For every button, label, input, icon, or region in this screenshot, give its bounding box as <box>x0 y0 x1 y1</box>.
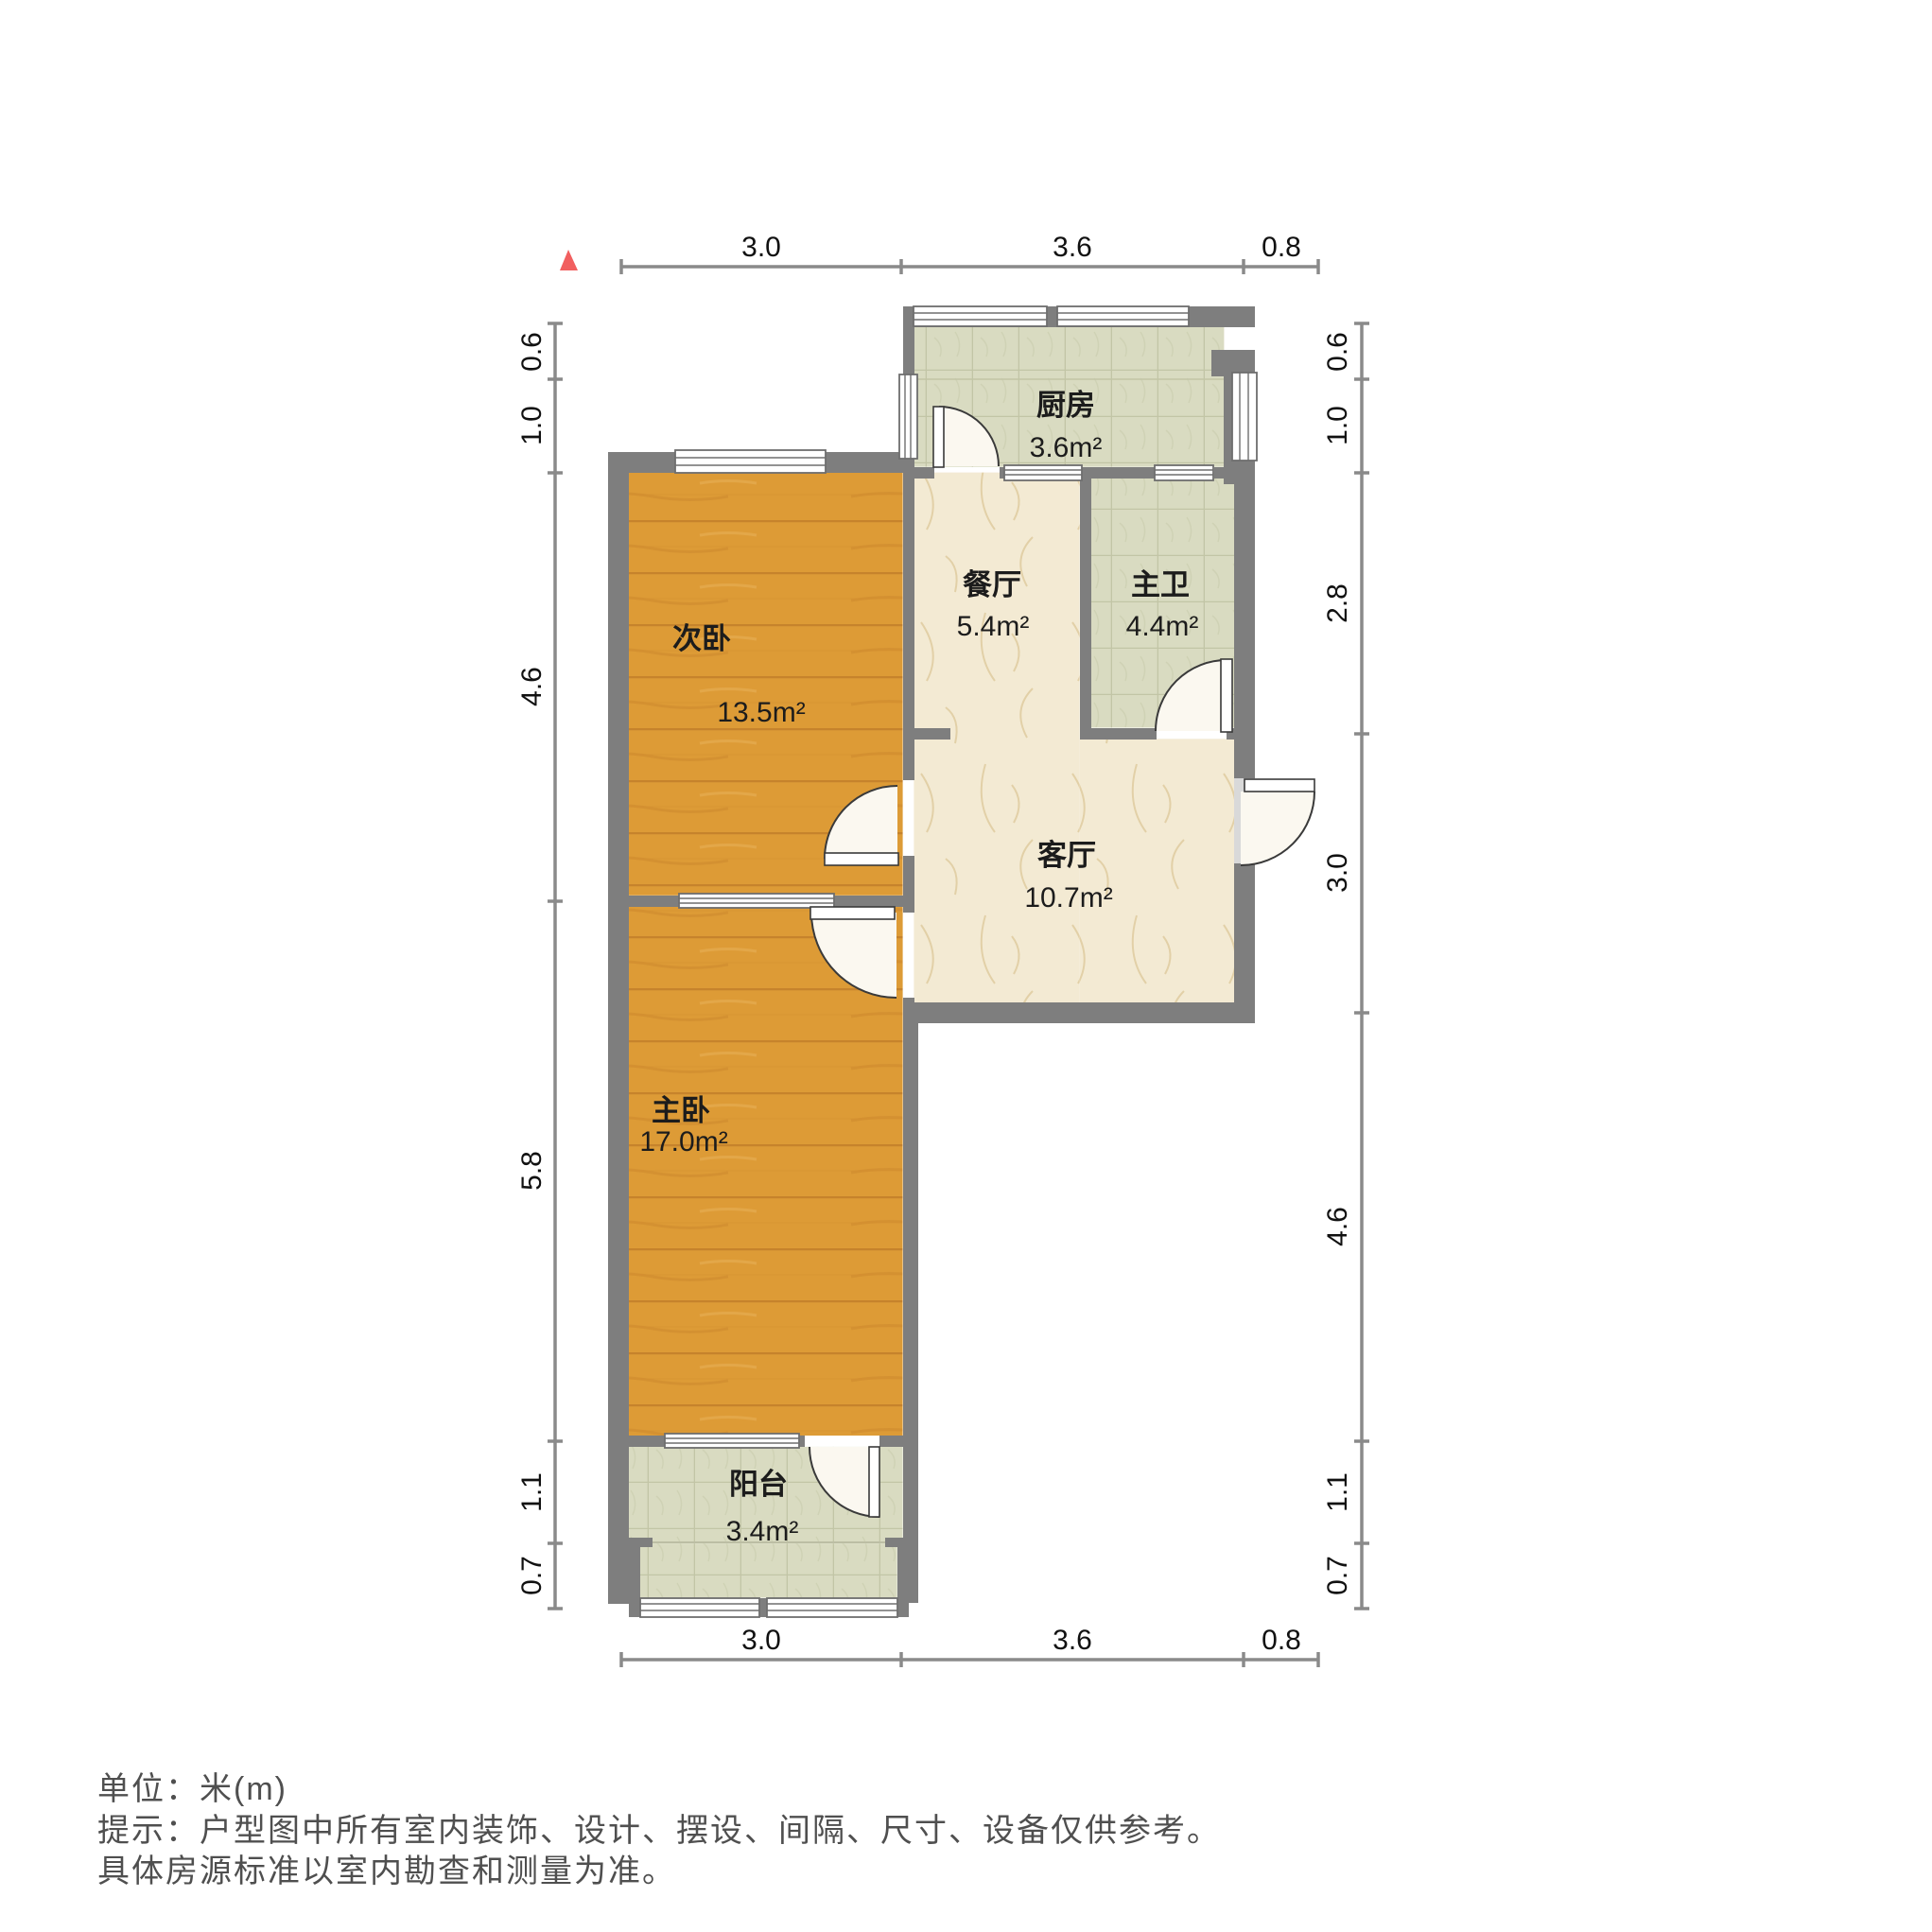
entry-door <box>1241 779 1314 865</box>
balcony-bay-window-right <box>767 1598 897 1617</box>
master-bath-label: 主卫 <box>1131 568 1190 601</box>
dim-bottom-3: 0.8 <box>1262 1625 1301 1656</box>
wall-segment <box>629 1543 640 1603</box>
master-bath-area: 4.4m² <box>1126 611 1199 642</box>
north-triangle-icon <box>560 250 578 270</box>
dim-top-2: 3.6 <box>1053 232 1092 263</box>
kitchen-dining-passthrough-window <box>1004 465 1082 480</box>
wall-segment <box>1080 728 1157 740</box>
dining-label: 餐厅 <box>963 568 1021 601</box>
dim-left-3: 4.6 <box>516 667 548 706</box>
dim-right-1: 0.6 <box>1322 332 1353 372</box>
master-bedroom-area: 17.0m² <box>639 1126 727 1157</box>
wall-segment <box>629 1598 640 1617</box>
dim-top-1: 3.0 <box>741 232 781 263</box>
wall-segment <box>629 896 679 907</box>
living-label: 客厅 <box>1037 839 1096 872</box>
master-bedroom-balcony-window <box>665 1434 799 1448</box>
wall-segment <box>759 1598 767 1617</box>
kitchen-bay-window-left <box>914 306 1047 326</box>
dim-left-5: 1.1 <box>516 1472 548 1512</box>
wall-segment <box>629 1436 665 1447</box>
floors <box>629 327 1234 1598</box>
dim-top-3: 0.8 <box>1262 232 1301 263</box>
wall-segment <box>834 896 914 907</box>
living-area: 10.7m² <box>1024 882 1112 914</box>
kitchen-bath-passthrough-window <box>1155 465 1213 480</box>
dim-right-7: 0.7 <box>1322 1556 1353 1595</box>
kitchen-area: 3.6m² <box>1030 432 1103 463</box>
wall-segment <box>897 1598 909 1617</box>
balcony-label: 阳台 <box>729 1468 788 1501</box>
second-bedroom-area: 13.5m² <box>717 697 805 728</box>
wall-segment <box>608 452 629 1604</box>
wall-segment <box>903 1023 918 1603</box>
wall-segment <box>914 728 950 740</box>
dimension-left: 0.6 1.0 4.6 5.8 1.1 0.7 <box>516 323 563 1609</box>
dim-left-1: 0.6 <box>516 332 548 372</box>
tip-note-line1: 提示：户型图中所有室内装饰、设计、摆设、间隔、尺寸、设备仅供参考。 <box>97 1813 1221 1849</box>
kitchen-left-window <box>899 374 917 459</box>
dim-right-6: 1.1 <box>1322 1472 1353 1512</box>
wall-segment <box>903 473 914 780</box>
wall-segment <box>1234 863 1255 1023</box>
dim-right-5: 4.6 <box>1322 1207 1353 1246</box>
bedroom-divider-window <box>679 894 834 908</box>
dimension-bottom: 3.0 3.6 0.8 <box>621 1625 1318 1667</box>
dim-bottom-2: 3.6 <box>1053 1625 1092 1656</box>
dining-area: 5.4m² <box>957 611 1030 642</box>
wall-segment <box>1234 459 1255 778</box>
wall-segment <box>1080 473 1091 739</box>
wall-segment <box>799 1436 805 1447</box>
second-bedroom-label: 次卧 <box>672 622 731 655</box>
wall-segment <box>897 1543 909 1603</box>
second-bedroom-top-window <box>675 450 826 473</box>
footer-notes: 单位：米(m) 提示：户型图中所有室内装饰、设计、摆设、间隔、尺寸、设备仅供参考… <box>97 1771 1221 1889</box>
dim-bottom-1: 3.0 <box>741 1625 781 1656</box>
living-floor <box>1080 739 1235 1002</box>
dim-right-4: 3.0 <box>1322 853 1353 893</box>
dim-right-2: 1.0 <box>1322 406 1353 445</box>
balcony-bay-floor <box>640 1543 897 1597</box>
dim-left-2: 1.0 <box>516 406 548 445</box>
dimension-top: 3.0 3.6 0.8 <box>621 232 1318 274</box>
dim-left-4: 5.8 <box>516 1151 548 1191</box>
wall-segment <box>1214 467 1234 479</box>
kitchen-bay-window-right <box>1057 306 1189 326</box>
wall-segment <box>914 467 934 479</box>
wall-segment <box>1081 467 1157 479</box>
floorplan-canvas: 厨房 3.6m² 餐厅 5.4m² 主卫 4.4m² 次卧 13.5m² 客厅 … <box>0 0 1932 1932</box>
kitchen-label: 厨房 <box>1036 389 1095 422</box>
dim-left-6: 0.7 <box>516 1556 548 1595</box>
balcony-area: 3.4m² <box>726 1516 799 1547</box>
wall-segment <box>903 1002 1255 1023</box>
balcony-bay-window-left <box>640 1598 759 1617</box>
unit-note: 单位：米(m) <box>97 1771 287 1807</box>
tip-note-line2: 具体房源标准以室内勘查和测量为准。 <box>97 1854 676 1889</box>
right-wall-window <box>1232 373 1257 461</box>
dimension-right: 0.6 1.0 2.8 3.0 4.6 1.1 0.7 <box>1322 323 1369 1609</box>
dim-right-3: 2.8 <box>1322 583 1353 623</box>
master-bedroom-label: 主卧 <box>652 1094 710 1127</box>
